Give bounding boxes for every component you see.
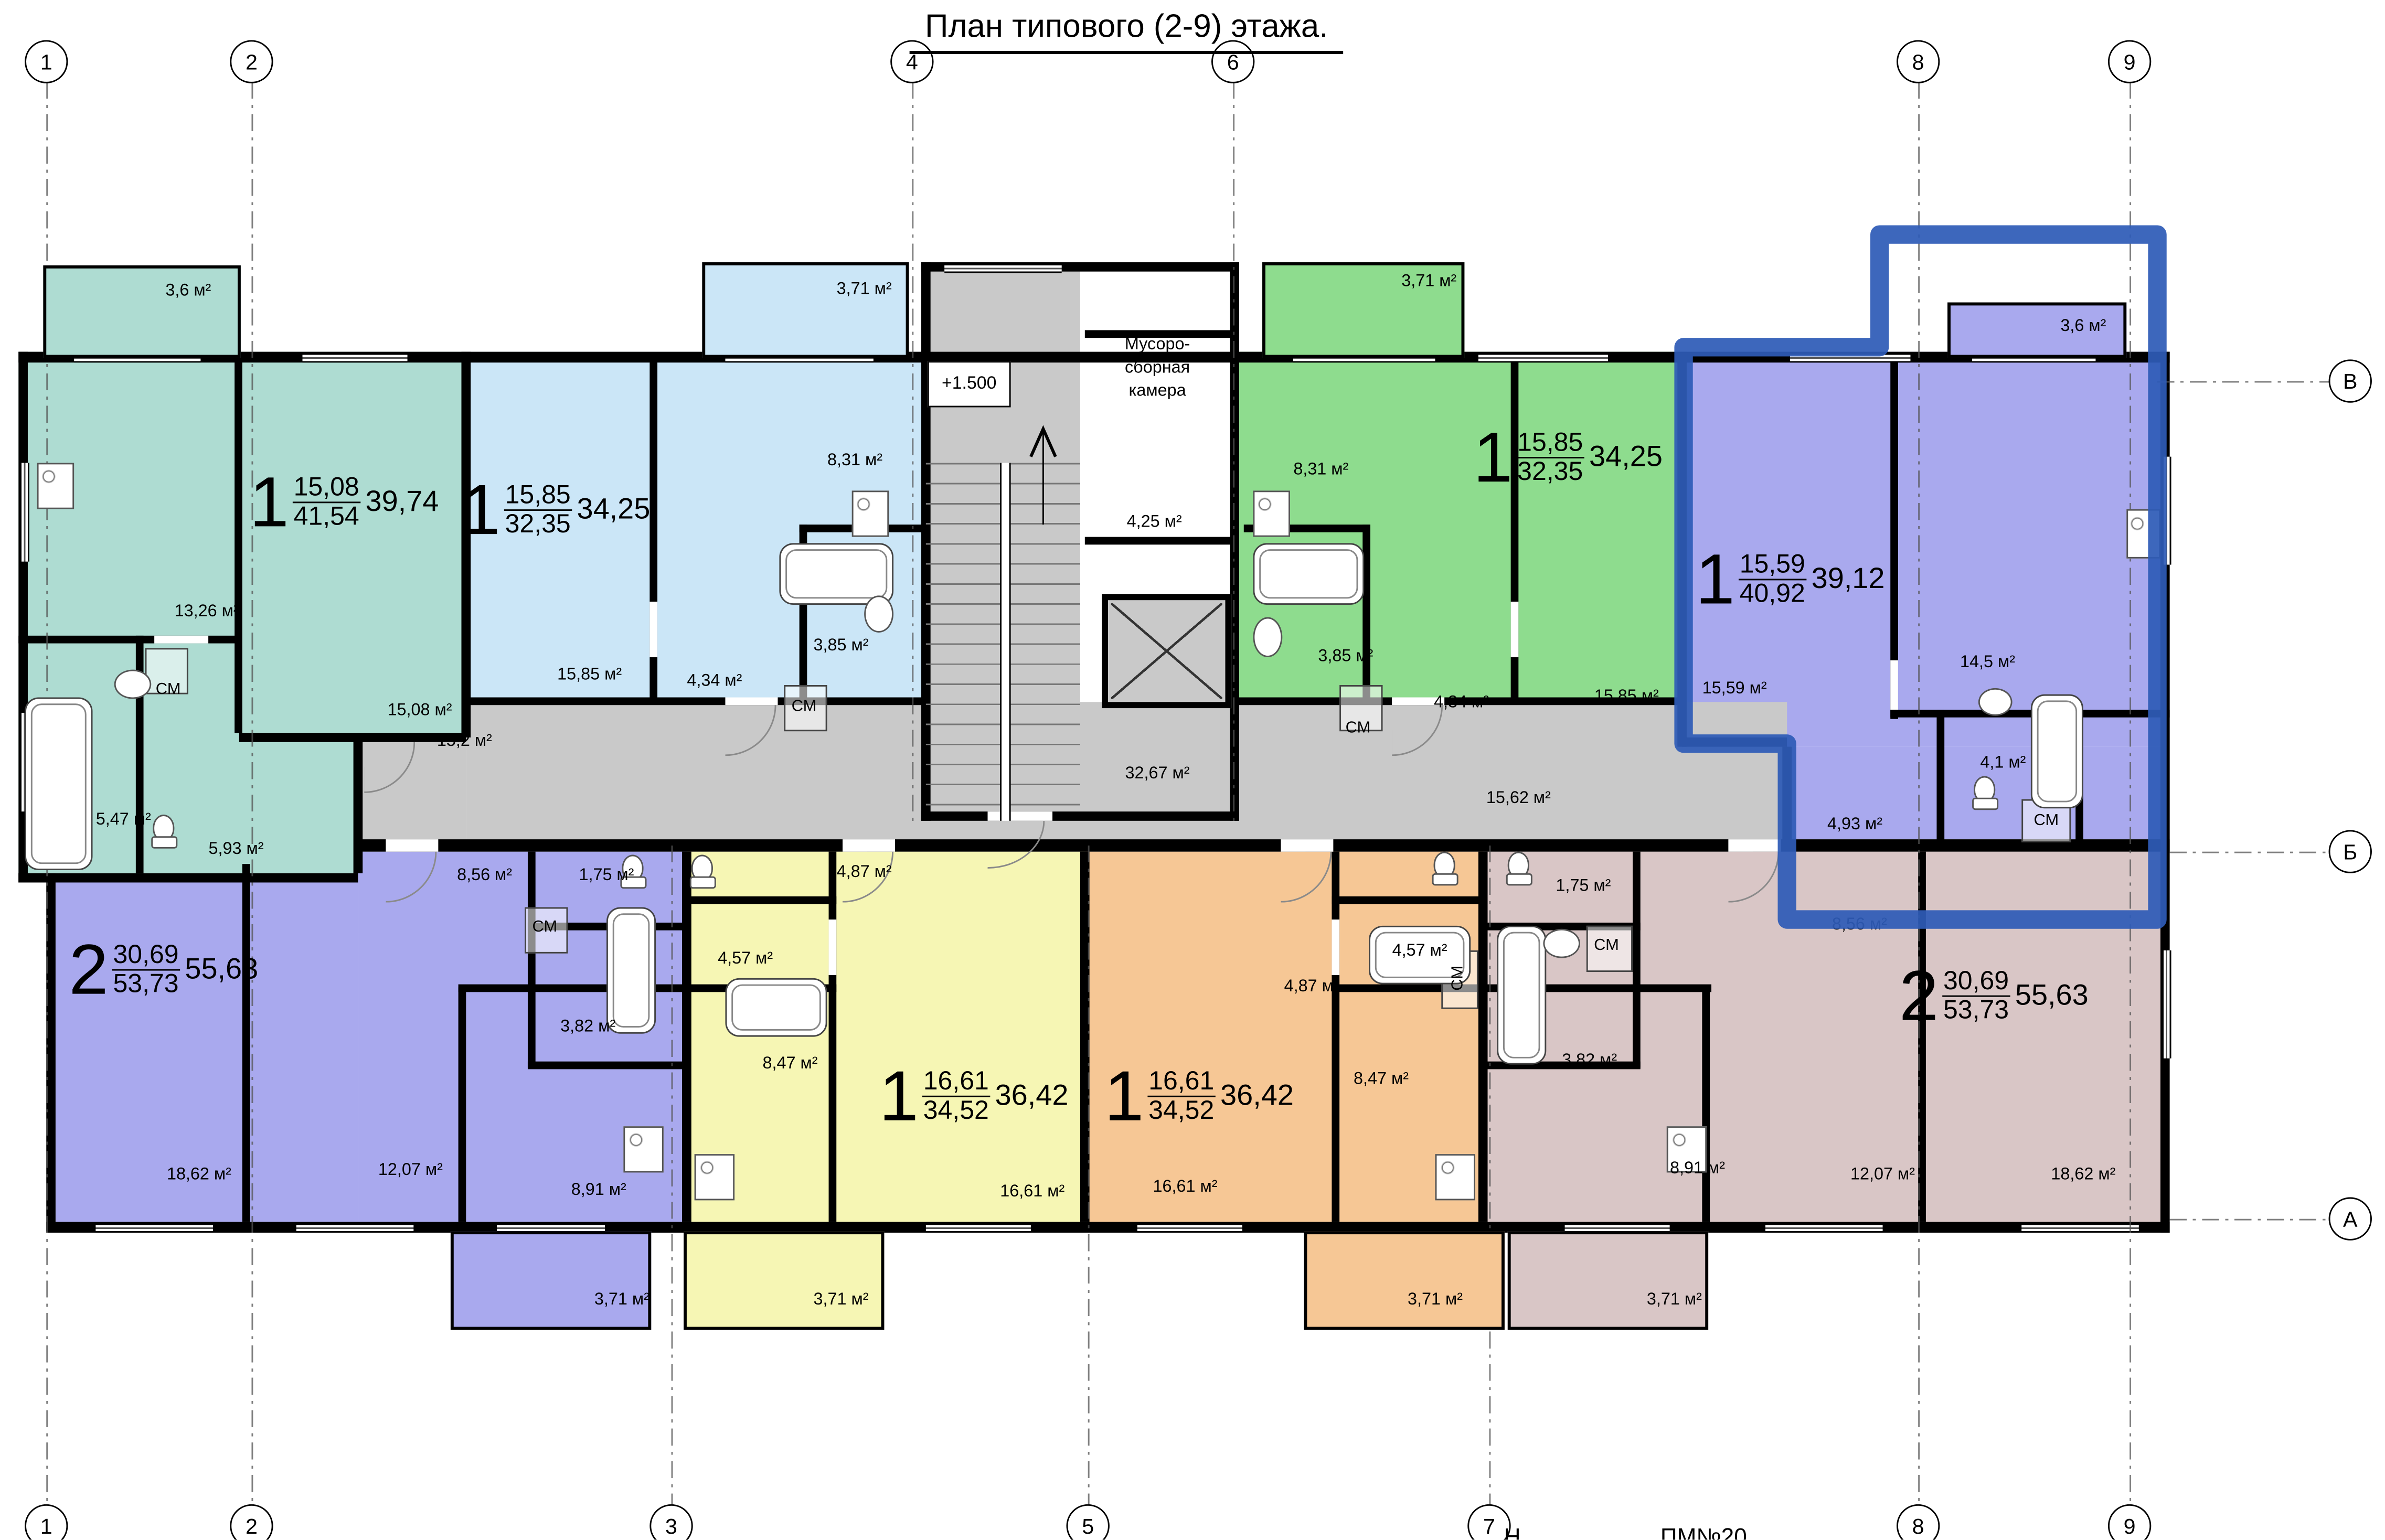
apartment-label-green: 1 15,8532,35 34,25 xyxy=(1473,429,1663,487)
axis-bubble-bottom-9: 9 xyxy=(2108,1504,2151,1540)
room-area-label: 1,75 м² xyxy=(1556,879,1611,895)
room-area-label: 4,57 м² xyxy=(1392,944,1447,960)
apartment-type: 1 xyxy=(1696,551,1735,609)
wall xyxy=(682,852,691,1222)
axis-bubble-bottom-5: 5 xyxy=(1067,1504,1110,1540)
wall xyxy=(354,737,363,873)
window xyxy=(2161,457,2170,565)
apartment-label-orange: 1 16,6134,52 36,42 xyxy=(1104,1068,1294,1126)
wall xyxy=(1782,747,1792,849)
apartment-label-purple2: 2 30,6953,73 55,63 xyxy=(69,942,258,1000)
axis-bubble-top-2: 2 xyxy=(230,40,273,83)
room-area-label: 13,26 м² xyxy=(175,604,239,621)
apartment-label-teal: 1 15,0841,54 39,74 xyxy=(249,474,439,532)
room-area-label: 3,82 м² xyxy=(1562,1053,1617,1070)
washer-label: СМ xyxy=(1346,720,1371,736)
door-opening xyxy=(1281,839,1333,852)
room-area-label: 8,47 м² xyxy=(1354,1072,1409,1088)
toilet-icon xyxy=(690,855,713,889)
axis-bubble-top-8: 8 xyxy=(1897,40,1940,83)
wall xyxy=(242,864,250,1222)
room-area-label: 8,47 м² xyxy=(762,1056,817,1073)
axis-line-3 xyxy=(672,846,673,1504)
overall-area: 34,25 xyxy=(577,494,650,528)
room-area-label: 8,91 м² xyxy=(571,1183,626,1200)
overall-area: 39,12 xyxy=(1812,563,1885,597)
overall-area: 34,25 xyxy=(1589,441,1663,475)
window xyxy=(1790,352,1910,362)
footer-fragment: Н xyxy=(1504,1524,1521,1540)
washer-label: СМ xyxy=(156,681,181,698)
door-opening xyxy=(1890,660,1898,710)
overall-area: 55,63 xyxy=(2015,980,2089,1014)
wall xyxy=(1478,852,1488,1222)
bathtub-icon xyxy=(606,907,656,1034)
apartment-orange-area xyxy=(1085,852,1483,1222)
axis-line-v xyxy=(2157,381,2330,383)
axis-line-6 xyxy=(1233,82,1234,826)
room-area-label: 3,6 м² xyxy=(2060,318,2106,335)
total-area: 32,35 xyxy=(1516,459,1584,487)
door-opening xyxy=(1332,919,1339,975)
room-area-label: 8,31 м² xyxy=(1293,462,1348,479)
wall xyxy=(235,361,242,733)
room-area-label: 4,25 м² xyxy=(1127,515,1182,531)
room-area-label: 3,85 м² xyxy=(814,638,869,655)
wall xyxy=(528,852,536,1068)
total-area: 32,35 xyxy=(504,511,572,540)
room-area-label: 8,31 м² xyxy=(827,453,882,469)
window xyxy=(497,1223,605,1232)
total-area: 53,73 xyxy=(1942,998,2010,1026)
balcony-beige xyxy=(1508,1231,1708,1330)
room-area-label: 8,91 м² xyxy=(1670,1161,1725,1178)
apartment-label-lightblue: 1 15,8532,35 34,25 xyxy=(461,482,650,540)
trash-room-label: камера xyxy=(1128,383,1186,400)
room-area-label: 5,47 м² xyxy=(96,812,151,829)
room-area-label: 3,82 м² xyxy=(560,1019,615,1036)
room-area-label: 16,61 м² xyxy=(1153,1180,1218,1196)
stove-icon xyxy=(852,490,889,537)
axis-line-2 xyxy=(251,82,253,1504)
apartment-label-yellow: 1 16,6134,52 36,42 xyxy=(879,1068,1069,1126)
wall xyxy=(1085,537,1239,545)
door-opening xyxy=(154,636,208,644)
axis-line-9 xyxy=(2130,82,2131,1504)
overall-area: 36,42 xyxy=(995,1080,1069,1114)
room-area-label: 4,1 м² xyxy=(1980,755,2026,772)
room-area-label: 4,93 м² xyxy=(1827,817,1882,833)
wall xyxy=(1702,987,1710,1222)
overall-area: 36,42 xyxy=(1220,1080,1294,1114)
trash-room-label: Мусоро- xyxy=(1125,337,1190,354)
washer-label: СМ xyxy=(792,699,817,715)
axis-line-5 xyxy=(1088,846,1090,1504)
axis-line-7 xyxy=(1489,846,1490,1504)
door-opening xyxy=(650,602,657,657)
wall xyxy=(466,698,926,705)
axis-line-4 xyxy=(912,82,913,826)
living-area: 15,59 xyxy=(1738,551,1807,581)
living-area: 15,08 xyxy=(292,474,361,504)
stamp-text: ПМ№20 xyxy=(1660,1524,1747,1540)
bathtub-icon xyxy=(25,698,92,870)
living-area: 15,85 xyxy=(1516,429,1584,459)
balcony-lightblue xyxy=(702,262,909,358)
sink-icon xyxy=(114,670,152,699)
axis-bubble-top-9: 9 xyxy=(2108,40,2151,83)
wall xyxy=(1362,525,1370,702)
overall-area: 55,63 xyxy=(185,954,258,988)
door-opening xyxy=(1511,602,1519,657)
balcony-orange xyxy=(1304,1231,1504,1330)
room-area-label: 14,5 м² xyxy=(1960,655,2015,672)
wall xyxy=(1677,352,1687,747)
trash-room-label: сборная xyxy=(1125,360,1190,377)
room-area-label: 3,71 м² xyxy=(837,282,892,298)
living-area: 16,61 xyxy=(1147,1068,1216,1098)
room-area-label: 3,85 м² xyxy=(1318,649,1373,666)
room-area-label: 15,85 м² xyxy=(1594,689,1659,705)
apartment-type: 2 xyxy=(69,942,108,1000)
corridor-area-label: 15,62 м² xyxy=(1486,790,1551,807)
room-area-label: 15,85 м² xyxy=(557,667,622,684)
sink-icon xyxy=(864,595,893,633)
apartment-type: 1 xyxy=(879,1068,919,1126)
apartment-type: 1 xyxy=(249,474,289,532)
stove-icon xyxy=(1253,490,1290,537)
room-area-label: 15,59 м² xyxy=(1702,681,1767,698)
window xyxy=(926,1223,1031,1232)
room-area-label: 3,71 м² xyxy=(1647,1292,1702,1309)
wall xyxy=(239,733,466,742)
room-area-label: 15,08 м² xyxy=(388,703,452,720)
room-area-label: 12,07 м² xyxy=(378,1162,443,1179)
wall xyxy=(829,852,837,1222)
wall xyxy=(528,1062,687,1070)
wall xyxy=(18,873,358,883)
door-opening xyxy=(1728,839,1781,852)
bathtub-icon xyxy=(725,978,827,1037)
window xyxy=(2021,1223,2139,1232)
page-title: План типового (2-9) этажа. xyxy=(910,9,1344,54)
total-area: 41,54 xyxy=(292,504,361,532)
window xyxy=(296,1223,414,1232)
axis-bubble-right-b: Б xyxy=(2329,830,2372,873)
stove-icon xyxy=(2126,509,2160,559)
washer-label: СМ xyxy=(2033,812,2059,829)
living-area: 30,69 xyxy=(1942,968,2010,998)
washer-label: СМ xyxy=(1594,938,1619,954)
window xyxy=(2161,950,2170,1058)
apartment-type: 2 xyxy=(1899,968,1939,1026)
window xyxy=(303,352,408,362)
room-area-label: 4,34 м² xyxy=(1434,695,1489,712)
room-area-label: 16,61 м² xyxy=(1000,1184,1064,1201)
door-opening xyxy=(725,698,778,705)
balcony-teal xyxy=(43,265,240,358)
window xyxy=(19,463,29,561)
stove-icon xyxy=(37,463,74,509)
balcony-purple2 xyxy=(451,1231,651,1330)
living-area: 30,69 xyxy=(112,942,180,971)
toilet-icon xyxy=(151,815,174,849)
stove-icon xyxy=(623,1126,663,1172)
room-area-label: 3,71 м² xyxy=(1401,274,1456,291)
wall xyxy=(1332,852,1339,1222)
apartment-type: 1 xyxy=(1104,1068,1144,1126)
window xyxy=(1478,352,1608,362)
wall xyxy=(1890,710,2169,718)
window xyxy=(1765,1223,1883,1232)
axis-line-8 xyxy=(1918,82,1920,1504)
floor-plan-stage: План типового (2-9) этажа. +1.500 xyxy=(0,0,2385,1540)
wall xyxy=(459,987,466,1222)
room-area-label: 4,87 м² xyxy=(837,865,892,882)
wall xyxy=(1332,896,1486,904)
room-area-label: 4,87 м² xyxy=(1284,979,1339,996)
apartment-label-violet: 1 15,5940,92 39,12 xyxy=(1696,551,1885,609)
sink-icon xyxy=(1253,617,1282,657)
toilet-icon xyxy=(1972,776,1995,810)
corridor-area-label: 32,67 м² xyxy=(1125,766,1190,783)
axis-line-b xyxy=(2170,852,2330,853)
total-area: 34,52 xyxy=(922,1098,991,1126)
window xyxy=(1137,1223,1242,1232)
room-area-label: 18,62 м² xyxy=(2051,1167,2115,1184)
wall xyxy=(358,839,2169,852)
room-area-label: 4,57 м² xyxy=(718,951,773,968)
sink-icon xyxy=(1978,688,2013,716)
axis-bubble-bottom-1: 1 xyxy=(25,1504,68,1540)
toilet-icon xyxy=(1432,852,1455,886)
toilet-icon xyxy=(1506,852,1529,886)
stove-icon xyxy=(1435,1154,1475,1200)
sink-icon xyxy=(1543,929,1580,958)
apartment-type: 1 xyxy=(461,482,500,540)
room-area-label: 3,6 м² xyxy=(165,283,211,300)
room-area-label: 12,07 м² xyxy=(1850,1167,1915,1184)
floor-plan-sheet: План типового (2-9) этажа. +1.500 xyxy=(0,0,2385,1540)
total-area: 34,52 xyxy=(1147,1098,1216,1126)
room-area-label: 5,93 м² xyxy=(209,842,264,859)
window xyxy=(1565,1223,1670,1232)
axis-bubble-right-a: А xyxy=(2329,1197,2372,1240)
bathtub-icon xyxy=(2031,694,2083,809)
washer-label: СМ xyxy=(1450,966,1466,991)
axis-bubble-top-1: 1 xyxy=(25,40,68,83)
balcony-yellow xyxy=(684,1231,884,1330)
apartment-type: 1 xyxy=(1473,429,1513,487)
washer-label: СМ xyxy=(532,919,557,935)
room-area-label: 8,56 м² xyxy=(1832,917,1887,934)
room-area-label: 18,62 м² xyxy=(167,1167,231,1184)
room-area-label: 4,34 м² xyxy=(687,673,742,690)
bathtub-icon xyxy=(1253,543,1364,605)
room-area-label: 8,56 м² xyxy=(457,868,512,885)
bathtub-icon xyxy=(1497,926,1546,1065)
stove-icon xyxy=(695,1154,734,1200)
room-area-label: 3,71 м² xyxy=(814,1292,869,1309)
window xyxy=(95,1223,213,1232)
window xyxy=(944,263,1062,273)
apartment-label-beige: 2 30,6953,73 55,63 xyxy=(1899,968,2089,1026)
door-opening xyxy=(386,839,438,852)
living-area: 16,61 xyxy=(922,1068,991,1098)
elevation-mark: +1.500 xyxy=(928,361,1011,407)
wall xyxy=(1936,710,1944,849)
room-area-label: 3,71 м² xyxy=(594,1292,650,1309)
door-opening xyxy=(843,839,895,852)
wall xyxy=(682,896,836,904)
axis-line-a xyxy=(2170,1219,2330,1221)
room-area-label: 3,71 м² xyxy=(1408,1292,1463,1309)
door-opening xyxy=(829,919,837,975)
axis-bubble-bottom-8: 8 xyxy=(1897,1504,1940,1540)
corridor-area-label: 15,2 м² xyxy=(437,734,492,751)
axis-bubble-right-v: В xyxy=(2329,359,2372,402)
axis-bubble-bottom-2: 2 xyxy=(230,1504,273,1540)
axis-bubble-bottom-3: 3 xyxy=(650,1504,693,1540)
room-area-label: 1,75 м² xyxy=(579,868,634,885)
overall-area: 39,74 xyxy=(366,486,439,520)
total-area: 40,92 xyxy=(1738,581,1807,609)
total-area: 53,73 xyxy=(112,971,180,1000)
wall xyxy=(1633,852,1641,1068)
wall xyxy=(1682,737,1787,747)
elevator-shaft xyxy=(1102,594,1231,708)
living-area: 15,85 xyxy=(504,482,572,511)
stair-flight-divider xyxy=(1000,463,1011,820)
